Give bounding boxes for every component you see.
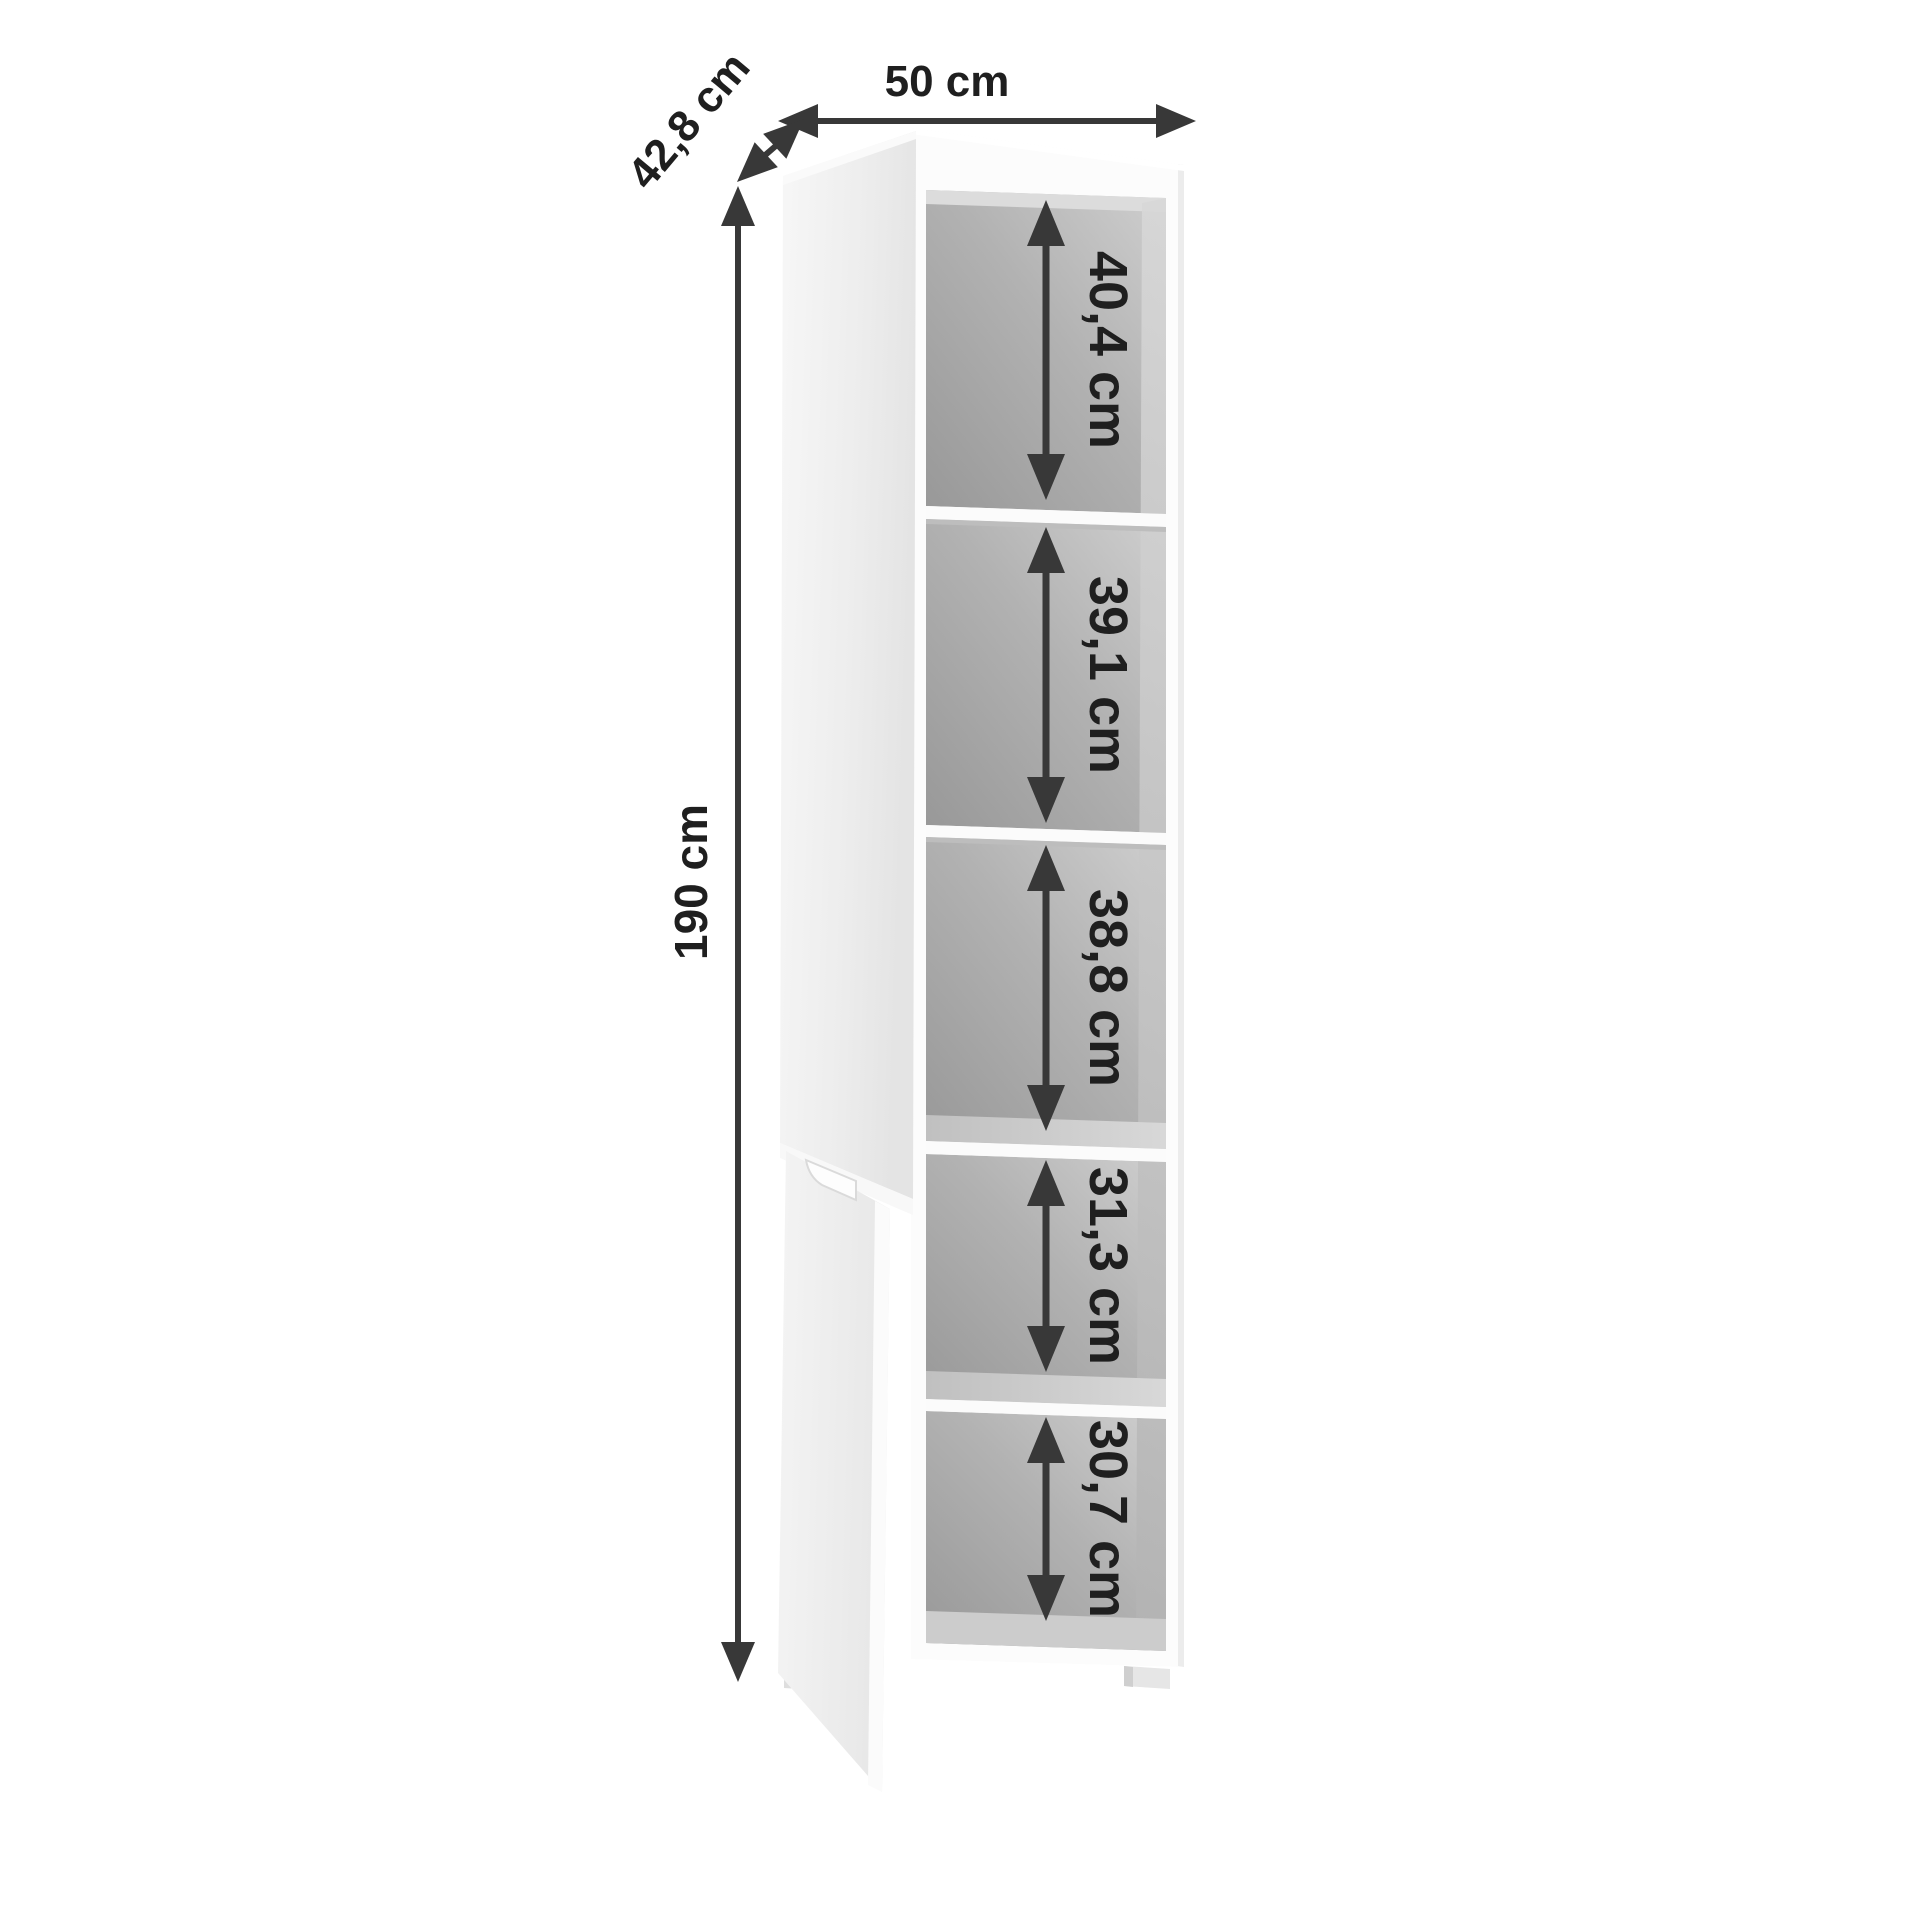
width-arrowhead-right xyxy=(1156,104,1196,138)
depth-dimension-label: 42,8 cm xyxy=(618,43,759,198)
compartment-2-label: 39,1 cm xyxy=(1078,576,1138,774)
dimension-diagram: 50 cm 42,8 cm 190 cm 40,4 cm 39,1 cm 38,… xyxy=(0,0,1920,1920)
cabinet-foot-right xyxy=(1124,1666,1170,1689)
shelf-divider-4 xyxy=(926,1371,1166,1419)
compartment-4-dimension: 31,3 cm xyxy=(1027,1160,1138,1372)
compartment-3-label: 38,8 cm xyxy=(1078,889,1138,1087)
height-arrowhead-top xyxy=(721,186,755,226)
height-dimension: 190 cm xyxy=(665,186,755,1682)
compartment-5-label: 30,7 cm xyxy=(1078,1420,1138,1618)
width-dimension-label: 50 cm xyxy=(885,57,1010,106)
upper-door xyxy=(780,131,916,1215)
lower-door xyxy=(778,1151,890,1792)
height-arrowhead-bottom xyxy=(721,1642,755,1682)
compartment-1-label: 40,4 cm xyxy=(1078,251,1138,449)
upper-door-panel xyxy=(780,131,916,1199)
width-dimension: 50 cm xyxy=(778,57,1196,138)
carcass-outer-right-edge xyxy=(1178,164,1184,1667)
cabinet-drawing: 50 cm 42,8 cm 190 cm 40,4 cm 39,1 cm 38,… xyxy=(0,0,1920,1920)
height-dimension-label: 190 cm xyxy=(665,804,717,960)
compartment-5-dimension: 30,7 cm xyxy=(1027,1417,1138,1621)
compartment-4-label: 31,3 cm xyxy=(1078,1167,1138,1365)
